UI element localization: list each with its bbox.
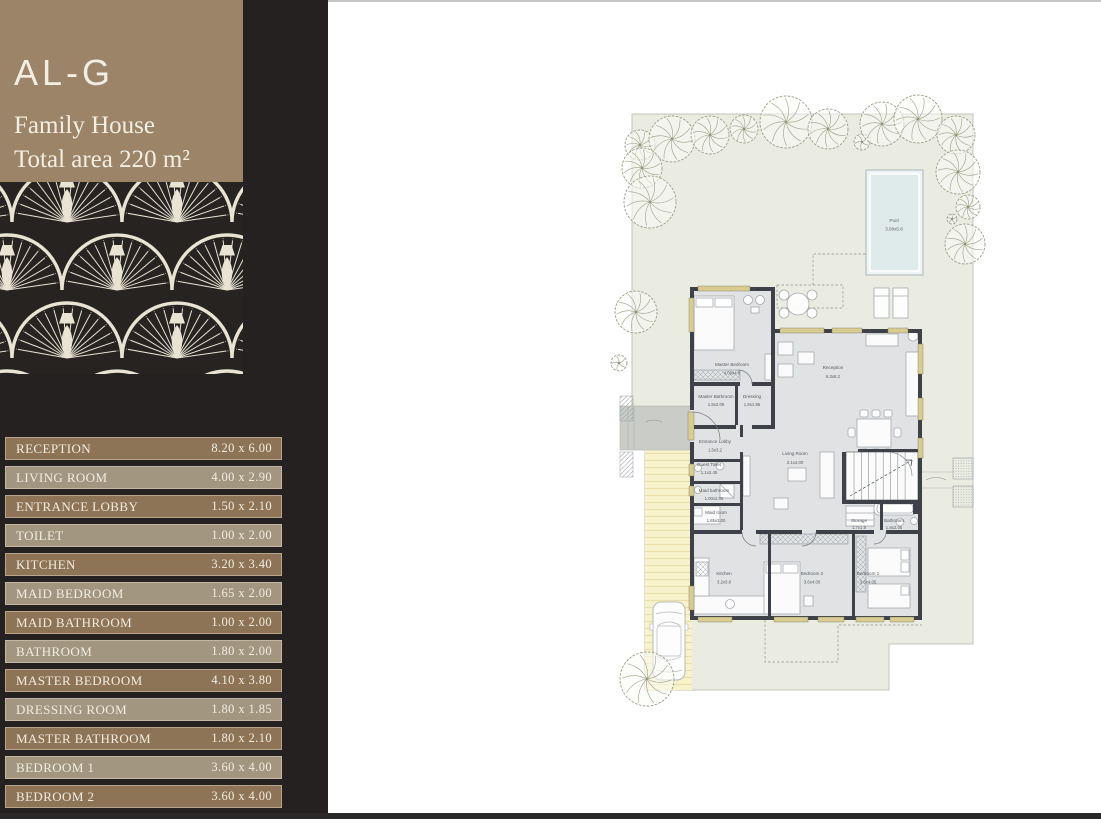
label-master-bedroom: Master Bedroom: [715, 362, 749, 367]
room-label: DRESSING ROOM: [16, 702, 127, 718]
svg-text:1.8x1.85: 1.8x1.85: [744, 402, 761, 407]
room-label: MASTER BATHROOM: [16, 731, 151, 747]
tree: [624, 176, 676, 228]
pool-dims: 3.00x5.8: [885, 227, 903, 232]
label-bedroom-1: Bedroom 1: [857, 571, 880, 576]
deco-fan: [12, 182, 122, 222]
tree: [956, 195, 980, 219]
room-label: RECEPTION: [16, 441, 91, 457]
room-label: ENTRANCE LOBBY: [16, 499, 138, 515]
room-dimension-table: RECEPTION8.20 x 6.00 LIVING ROOM4.00 x 2…: [5, 437, 282, 814]
room-dims: 1.80 x 1.85: [211, 702, 272, 717]
svg-text:4.00x4.8: 4.00x4.8: [724, 371, 741, 376]
table-row: BEDROOM 23.60 x 4.00: [5, 785, 282, 808]
svg-text:3.1x4.00: 3.1x4.00: [787, 460, 804, 465]
tree: [620, 652, 674, 706]
room-dims: 3.20 x 3.40: [211, 557, 272, 572]
room-dims: 8.20 x 6.00: [211, 441, 272, 456]
pool-label: Pool: [889, 218, 898, 223]
table-row: LIVING ROOM4.00 x 2.90: [5, 466, 282, 489]
table-row: KITCHEN3.20 x 3.40: [5, 553, 282, 576]
room-label: TOILET: [16, 528, 64, 544]
tree: [730, 115, 758, 143]
room-label: KITCHEN: [16, 557, 76, 573]
label-storage: Storage: [851, 518, 868, 523]
pool: Pool 3.00x5.8: [866, 170, 923, 275]
svg-text:1.00x2.00: 1.00x2.00: [705, 496, 724, 501]
table-row: TOILET1.00 x 2.00: [5, 524, 282, 547]
tree: [615, 291, 657, 333]
room-dims: 4.10 x 3.80: [211, 673, 272, 688]
deco-fan: [122, 182, 232, 222]
table-row: ENTRANCE LOBBY1.50 x 2.10: [5, 495, 282, 518]
room-label: BEDROOM 2: [16, 789, 94, 805]
table-row: RECEPTION8.20 x 6.00: [5, 437, 282, 460]
room-dims: 1.80 x 2.10: [211, 731, 272, 746]
label-dressing: Dressing: [743, 394, 762, 399]
svg-text:1.8x2.05: 1.8x2.05: [708, 402, 725, 407]
room-label: MAID BEDROOM: [16, 586, 124, 602]
room-dims: 1.65 x 2.00: [211, 586, 272, 601]
room-dims: 1.00 x 2.00: [211, 528, 272, 543]
brand-panel: AL-G Family House Total area 220 m²: [0, 0, 243, 182]
floor-plan-svg: Pool 3.00x5.8: [328, 2, 1101, 819]
room-label: BEDROOM 1: [16, 760, 94, 776]
staircase: [846, 452, 918, 500]
room-dims: 3.60 x 4.00: [211, 760, 272, 775]
label-reception: Reception: [823, 365, 844, 370]
tree: [894, 95, 942, 143]
label-entrance-lobby: Entrance Lobby: [699, 439, 732, 444]
room-dims: 1.80 x 2.00: [211, 644, 272, 659]
table-row: MAID BEDROOM1.65 x 2.00: [5, 582, 282, 605]
label-bedroom-2: Bedroom 2: [801, 571, 824, 576]
total-area: Total area 220 m²: [14, 146, 190, 174]
tree: [760, 96, 812, 148]
table-row: DRESSING ROOM1.80 x 1.85: [5, 698, 282, 721]
label-kitchen: Kitchen: [716, 571, 732, 576]
svg-text:1.1x2.45: 1.1x2.45: [701, 470, 718, 475]
bottom-bar: [0, 813, 1101, 819]
room-label: MAID BATHROOM: [16, 615, 132, 631]
sidebar: AL-G Family House Total area 220 m² RECE…: [0, 0, 328, 819]
room-dims: 4.00 x 2.90: [211, 470, 272, 485]
plan-canvas: Pool 3.00x5.8: [328, 0, 1101, 819]
label-guest-toilet: Guest Toilet: [697, 462, 722, 467]
table-row: BATHROOM1.80 x 2.00: [5, 640, 282, 663]
tree: [808, 109, 848, 149]
svg-text:1.7x1.8: 1.7x1.8: [852, 525, 867, 530]
room-dims: 1.00 x 2.00: [211, 615, 272, 630]
table-row: MAID BATHROOM1.00 x 2.00: [5, 611, 282, 634]
tree: [937, 116, 975, 154]
table-row: BEDROOM 13.60 x 4.00: [5, 756, 282, 779]
room-dims: 3.60 x 4.00: [211, 789, 272, 804]
tree: [691, 116, 729, 154]
room-label: BATHROOM: [16, 644, 92, 660]
svg-text:3.6x4.05: 3.6x4.05: [860, 580, 877, 585]
table-row: MASTER BATHROOM1.80 x 2.10: [5, 727, 282, 750]
svg-text:1.5x3.2: 1.5x3.2: [708, 448, 723, 453]
label-maid-room: Maid room: [705, 510, 727, 515]
room-dims: 1.50 x 2.10: [211, 499, 272, 514]
art-deco-pattern: [0, 182, 243, 374]
label-living-room: Living Room: [782, 451, 808, 456]
svg-text:6.3x8.2: 6.3x8.2: [826, 374, 841, 379]
svg-text:1.8x2.05: 1.8x2.05: [886, 525, 903, 530]
tree: [947, 214, 957, 224]
fan-pattern-svg: [0, 182, 243, 374]
room-label: MASTER BEDROOM: [16, 673, 143, 689]
unit-type: Family House: [14, 112, 155, 140]
tree: [611, 355, 627, 371]
label-bathroom: Bathroom: [884, 518, 904, 523]
label-maid-bathroom: Maid bathroom: [699, 488, 730, 493]
room-label: LIVING ROOM: [16, 470, 107, 486]
table-row: MASTER BEDROOM4.10 x 3.80: [5, 669, 282, 692]
svg-text:1.65x2.00: 1.65x2.00: [707, 518, 726, 523]
tree: [945, 224, 985, 264]
tree: [936, 150, 980, 194]
unit-code: AL-G: [14, 52, 114, 94]
label-master-bathroom: Master Bathroom: [698, 394, 733, 399]
svg-text:3.6x4.00: 3.6x4.00: [804, 580, 821, 585]
svg-text:3.2x3.8: 3.2x3.8: [717, 580, 732, 585]
